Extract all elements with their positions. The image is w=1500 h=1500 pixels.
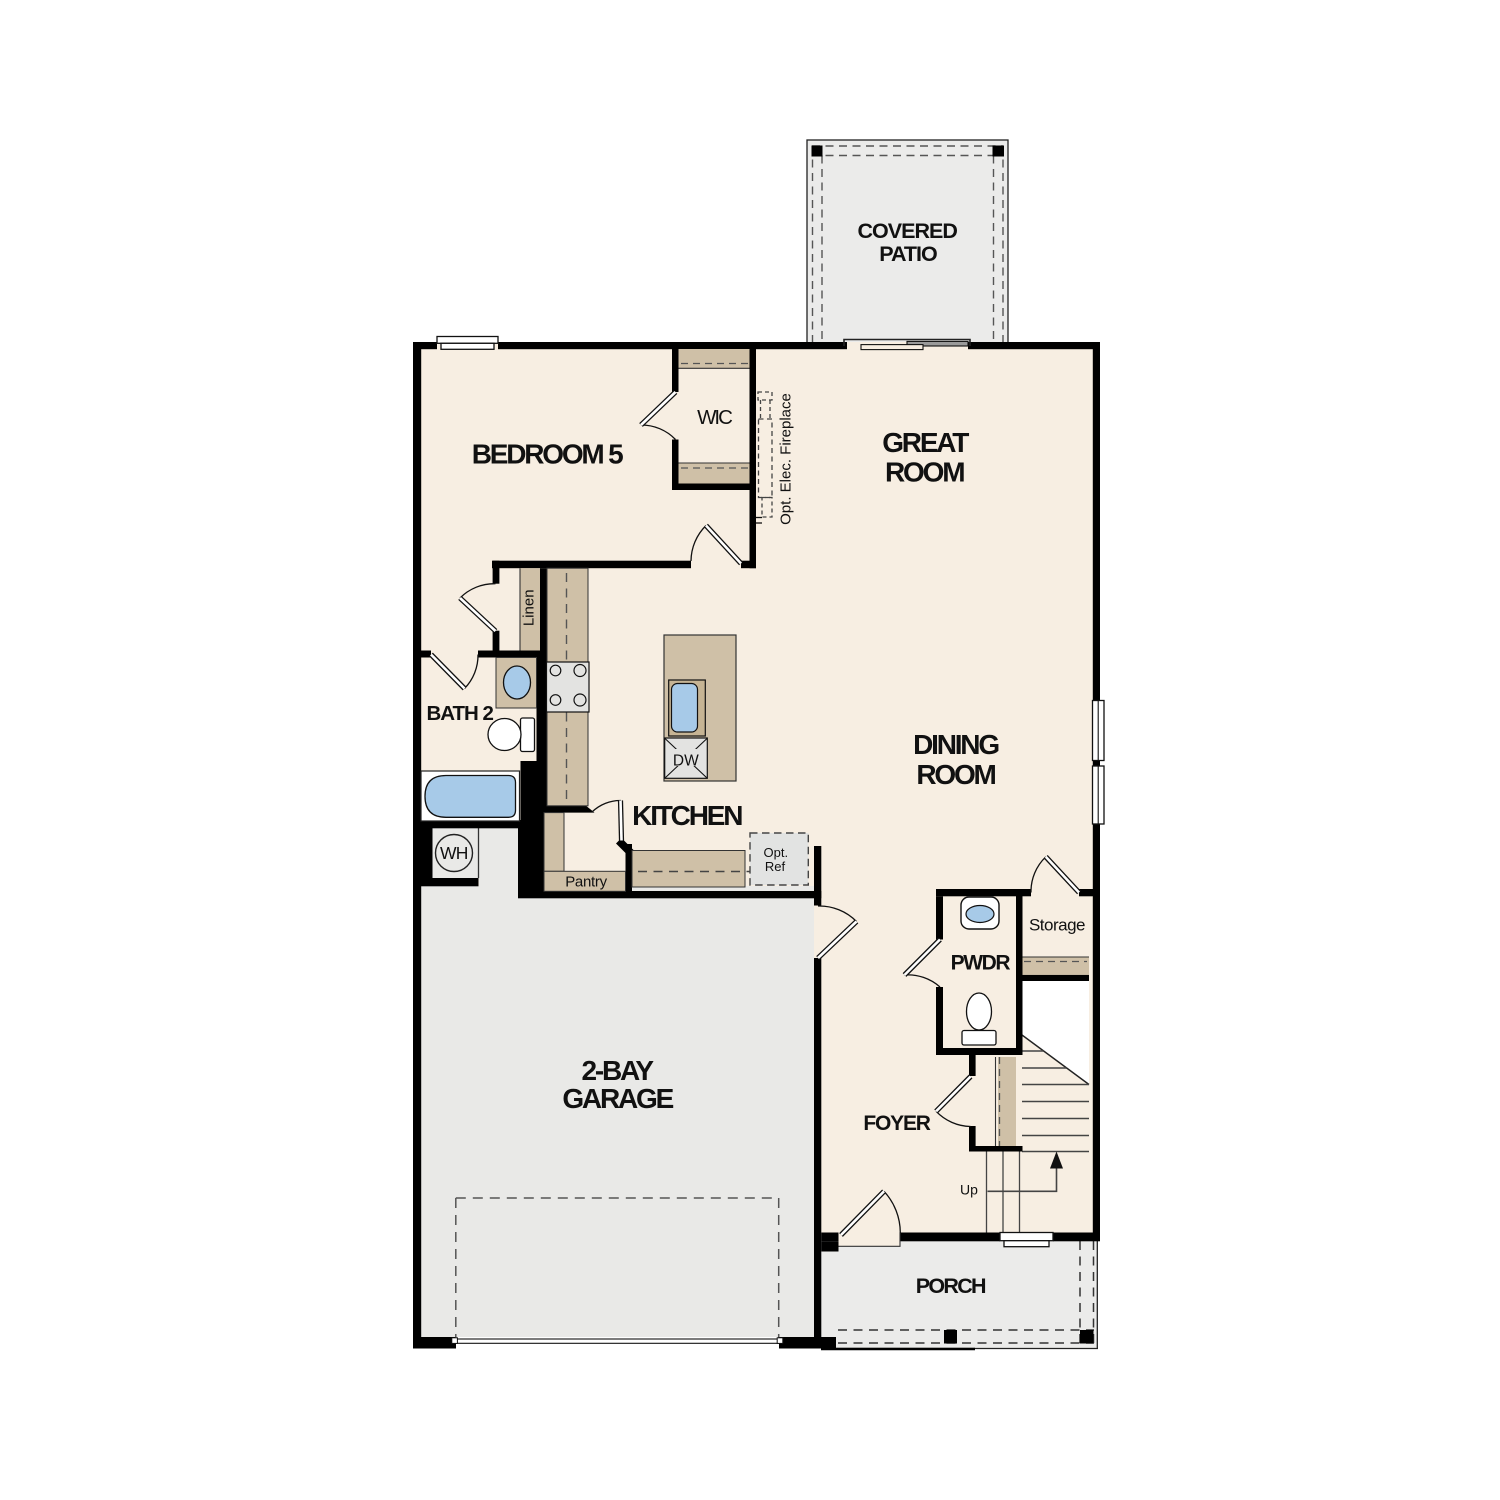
- svg-text:Storage: Storage: [1029, 916, 1085, 935]
- svg-text:ROOM: ROOM: [885, 457, 964, 488]
- svg-text:Linen: Linen: [521, 589, 538, 626]
- svg-text:GARAGE: GARAGE: [562, 1083, 673, 1114]
- svg-text:COVERED: COVERED: [858, 219, 958, 243]
- svg-text:WH: WH: [440, 843, 468, 863]
- svg-text:Opt. Elec. Fireplace: Opt. Elec. Fireplace: [778, 393, 795, 525]
- svg-text:Ref: Ref: [765, 859, 786, 874]
- svg-text:Up: Up: [960, 1182, 978, 1198]
- svg-text:BEDROOM 5: BEDROOM 5: [472, 439, 623, 470]
- svg-text:Pantry: Pantry: [565, 874, 607, 891]
- svg-text:FOYER: FOYER: [863, 1112, 930, 1135]
- svg-text:WIC: WIC: [697, 406, 733, 429]
- svg-text:KITCHEN: KITCHEN: [632, 800, 742, 831]
- svg-text:Opt.: Opt.: [764, 845, 789, 860]
- svg-text:DW: DW: [673, 753, 699, 770]
- svg-text:PATIO: PATIO: [879, 242, 937, 266]
- svg-text:PWDR: PWDR: [951, 952, 1011, 975]
- svg-text:PORCH: PORCH: [916, 1274, 986, 1298]
- svg-text:GREAT: GREAT: [882, 427, 969, 458]
- svg-text:ROOM: ROOM: [916, 759, 995, 790]
- svg-text:DINING: DINING: [913, 729, 999, 760]
- svg-text:2-BAY: 2-BAY: [581, 1055, 654, 1086]
- svg-text:BATH 2: BATH 2: [426, 702, 493, 725]
